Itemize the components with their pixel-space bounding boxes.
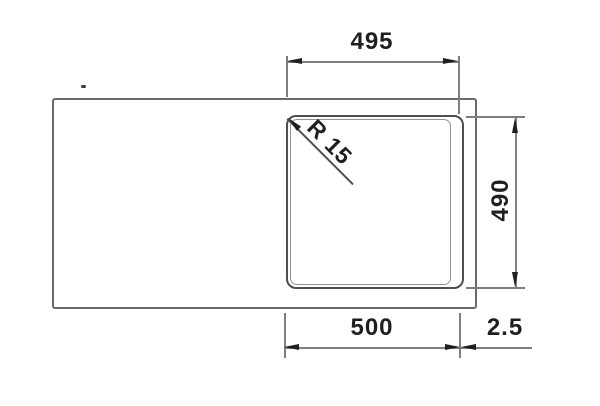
- bottom-dim-label: 500: [332, 316, 412, 340]
- right-dim-arrow-up-icon: [512, 118, 518, 133]
- right-dim-line: [515, 118, 517, 287]
- right-dim-label: 490: [489, 160, 513, 240]
- top-dim-label: 495: [332, 30, 412, 54]
- bottom-dim-extension-left: [284, 313, 286, 358]
- stray-dot: [81, 85, 86, 88]
- top-dim-extension-right: [458, 56, 460, 114]
- bottom-dim-arrow-left-icon: [284, 344, 299, 350]
- right-dim-extension-bottom: [466, 287, 525, 289]
- right-dim-arrow-down-icon: [512, 272, 518, 287]
- bottom-dim-extension-right: [459, 313, 461, 358]
- offset-dim-arrow-icon: [461, 344, 476, 350]
- offset-dim-label: 2.5: [465, 316, 545, 340]
- bottom-dim-arrow-right-icon: [445, 344, 460, 350]
- top-dim-line: [287, 61, 458, 63]
- bottom-dim-line: [284, 347, 460, 349]
- top-dim-arrow-left-icon: [287, 58, 302, 64]
- top-dim-arrow-right-icon: [443, 58, 458, 64]
- technical-drawing-canvas: 495 490 500 2.5 R 15: [0, 0, 600, 406]
